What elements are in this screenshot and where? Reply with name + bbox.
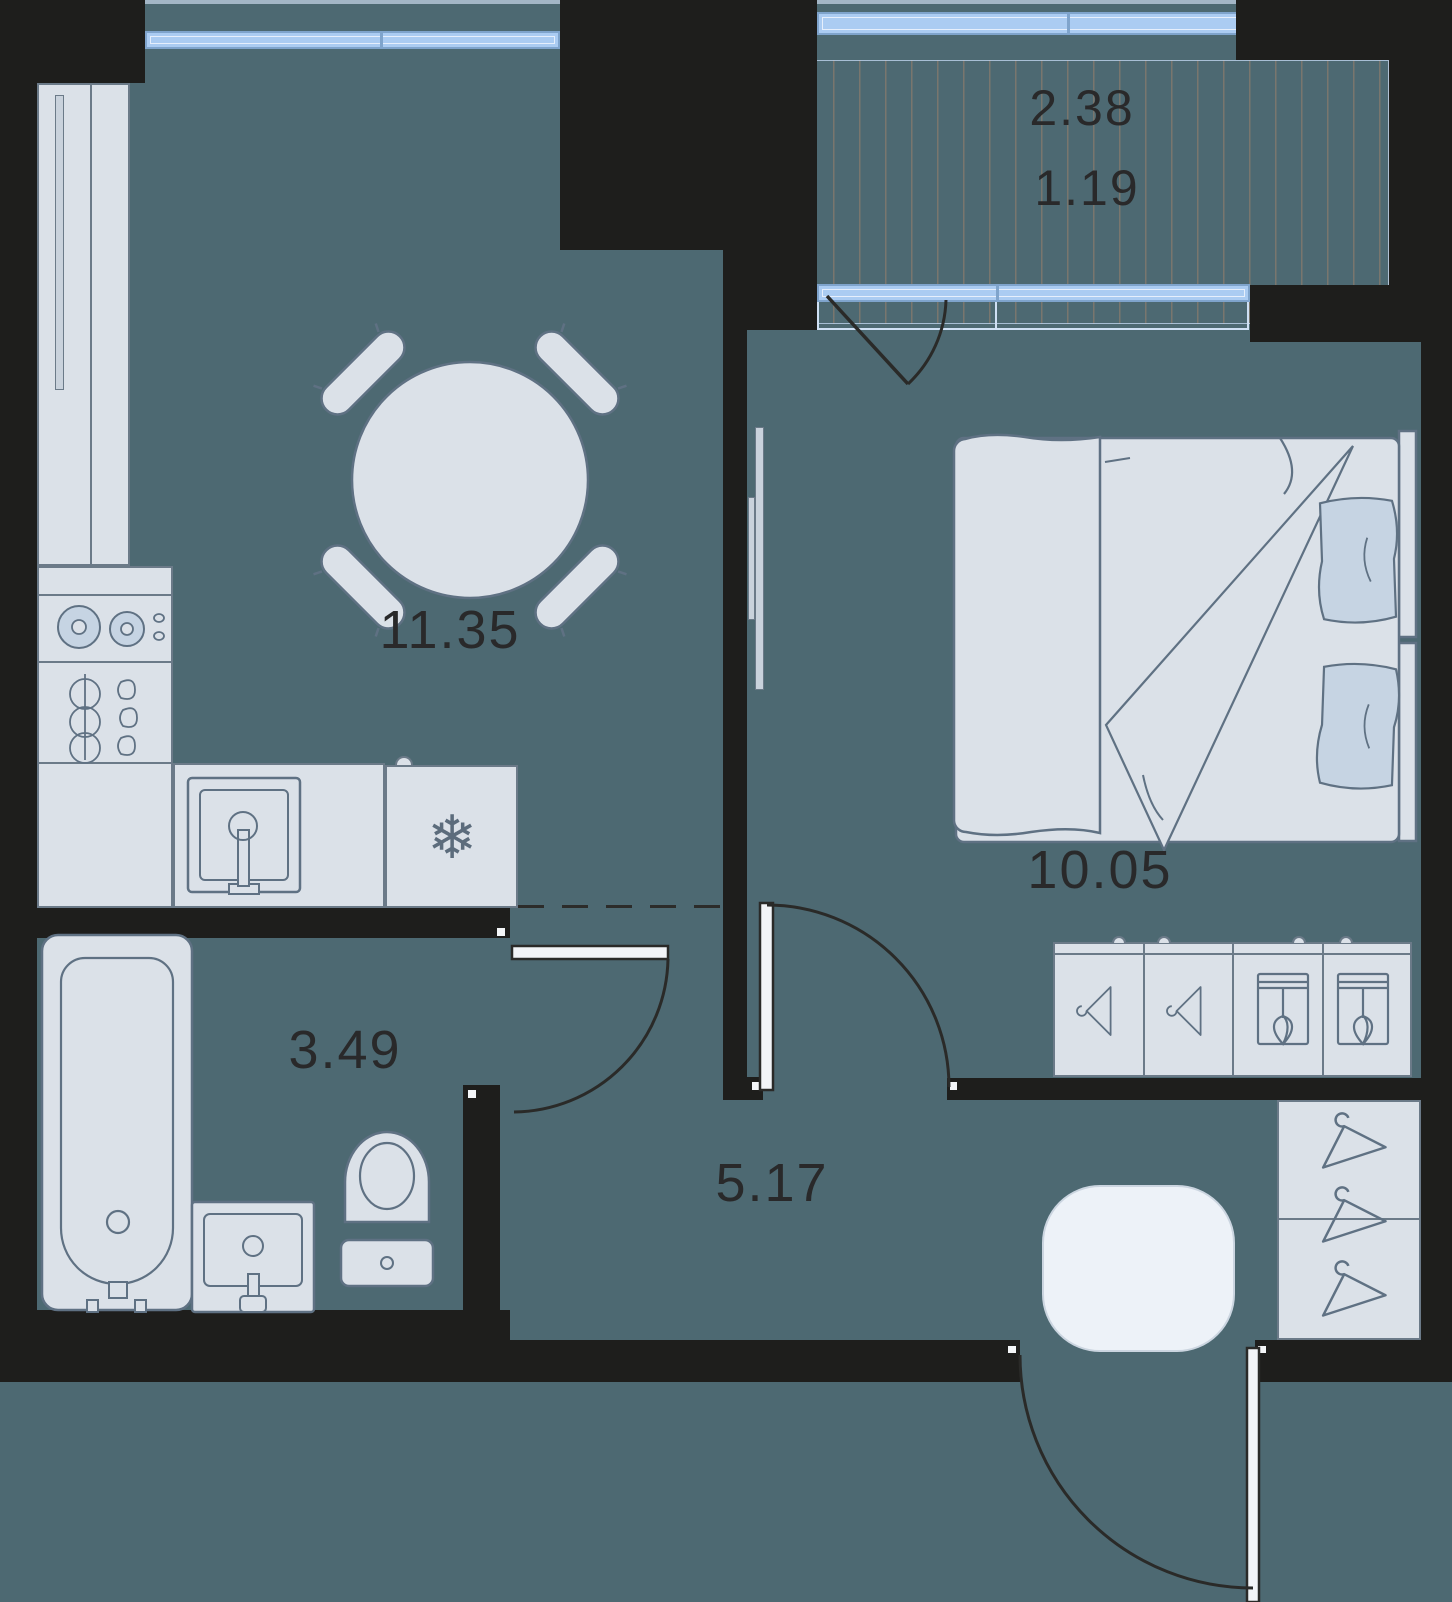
wall-top-left-corner <box>0 0 145 83</box>
balcony-reduced-area-label: 1.19 <box>1034 159 1139 217</box>
bedroom-door <box>720 880 1000 1120</box>
door-swing-arc <box>514 959 668 1112</box>
hanger-icon <box>1308 1186 1390 1244</box>
wall-right-upper <box>1389 0 1452 330</box>
wardrobe-knob <box>1157 936 1171 943</box>
wardrobe-knob <box>1339 936 1353 943</box>
snowflake-icon: ❄ <box>427 808 477 868</box>
blanket <box>954 435 1100 835</box>
door-leaf <box>1247 1348 1259 1602</box>
wall-bottom-bathroom <box>0 1310 510 1382</box>
hanger-icon <box>1308 1112 1390 1170</box>
kitchen-window-outer-edge <box>145 0 560 4</box>
pillow <box>1316 663 1400 790</box>
toilet-icon <box>341 1132 433 1286</box>
wardrobe-divider <box>1232 944 1234 1075</box>
balcony-window-outer-edge <box>817 0 1250 4</box>
balcony-parapet-mullion <box>1067 14 1070 33</box>
balcony-parapet-window <box>817 12 1250 35</box>
wall-bottom-hallway <box>510 1340 1020 1382</box>
door-swing-arc <box>1020 1355 1253 1588</box>
bed-icon <box>940 420 1422 852</box>
kitchen-window-mullion <box>380 33 383 47</box>
hanger-icon <box>1068 978 1128 1044</box>
bedroom-tv-screen <box>755 427 764 690</box>
hanger-icon <box>1158 978 1218 1044</box>
pillow <box>1316 497 1400 624</box>
door-leaf <box>760 903 773 1090</box>
washbasin-icon <box>192 1202 314 1312</box>
wall-bedroom-bottom <box>947 1078 1452 1100</box>
wardrobe-knob <box>1112 936 1126 943</box>
bathtub-icon <box>42 935 192 1312</box>
kitchen-window <box>145 31 560 49</box>
hallway-rug <box>1042 1185 1235 1352</box>
balcony-total-area-label: 2.38 <box>1029 79 1134 137</box>
tv-console-edge <box>90 85 92 564</box>
wardrobe-divider <box>1143 944 1145 1075</box>
door-swing-arc <box>908 300 946 384</box>
balcony-door <box>780 280 1030 410</box>
bathroom-door <box>460 900 720 1140</box>
stove-icon <box>37 566 173 908</box>
hanger-icon <box>1308 1260 1390 1318</box>
balcony-door-frame-right <box>1247 302 1249 330</box>
door-leaf <box>512 946 668 959</box>
wardrobe-knob <box>1292 936 1306 943</box>
kitchen-window-glass <box>150 36 555 44</box>
bedroom-area-label: 10.05 <box>1027 839 1172 901</box>
wall-top-center <box>560 0 723 250</box>
bathroom-area-label: 3.49 <box>288 1019 401 1081</box>
folded-clothes-icon <box>1336 972 1390 1048</box>
hallway-area-label: 5.17 <box>715 1152 828 1214</box>
kitchen-sink-icon <box>185 768 305 903</box>
bedroom-tv-bracket <box>748 497 755 620</box>
door-swing-arc <box>767 905 949 1087</box>
wall-left-exterior <box>0 0 37 1382</box>
wall-right-exterior <box>1421 300 1452 1382</box>
door-leaf <box>827 296 908 384</box>
tv-console <box>37 83 130 566</box>
wardrobe-divider <box>1322 944 1324 1075</box>
floor-plan: ❄ <box>0 0 1452 1602</box>
folded-clothes-icon <box>1256 972 1310 1048</box>
bathroom-fixtures <box>37 930 467 1315</box>
dining-table <box>352 362 588 598</box>
balcony-parapet-glass <box>822 17 1245 30</box>
tv-screen <box>55 95 64 390</box>
entrance-door <box>1000 1330 1452 1602</box>
kitchen-living-area-label: 11.35 <box>379 599 520 661</box>
